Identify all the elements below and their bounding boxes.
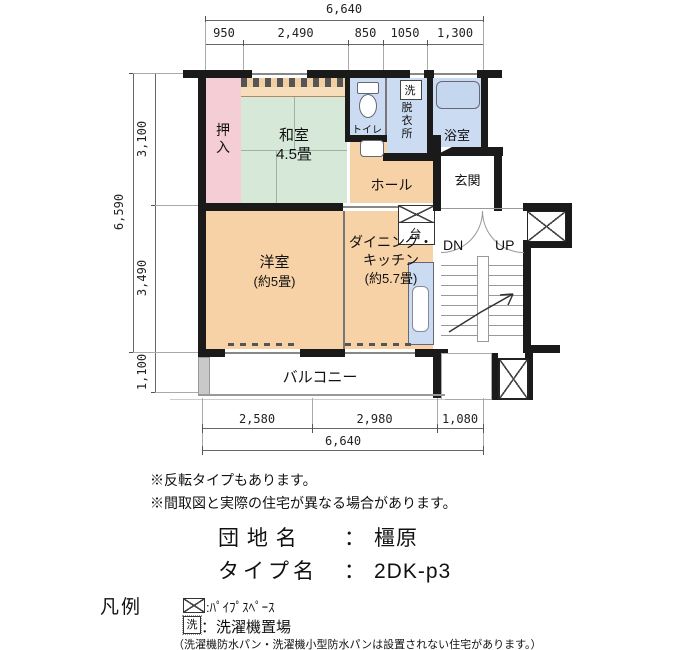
ext-line	[205, 22, 206, 70]
dim-tick	[202, 446, 203, 455]
wall-left	[198, 70, 206, 357]
pipe-space-xbox-bottom	[498, 358, 529, 400]
ext-line	[427, 46, 428, 70]
window-dk-balcony	[345, 349, 415, 357]
washer-legend-mark: 洗	[184, 617, 200, 633]
wall-datsuiijo-bottom	[383, 153, 433, 161]
stairs-up-label: UP	[495, 237, 514, 253]
estate-name-label: 団 地 名	[218, 522, 336, 552]
genkan-label: 玄関	[441, 170, 494, 189]
pipe-space-xbox-top	[527, 211, 566, 242]
stair-landing	[441, 353, 492, 400]
washitsu-size-label: 4.5畳	[241, 143, 347, 164]
washer-pan-label: 洗	[400, 82, 420, 98]
wall-bottom-right-stub	[523, 345, 560, 353]
dim-line	[205, 44, 484, 45]
washer-legend-icon: 洗	[183, 616, 201, 634]
legend-title: 凡例	[100, 592, 142, 619]
dim-left-lower: 3,490	[135, 248, 149, 308]
ext-line	[483, 22, 484, 70]
dim-top-seg: 850	[348, 26, 383, 40]
kitchen-sink-basin	[412, 286, 429, 332]
oshiire-label: 押入	[215, 122, 231, 155]
dim-bottom-seg: 2,980	[312, 412, 437, 426]
estate-name-row: 団 地 名 ： 橿原	[218, 522, 418, 552]
dim-line	[155, 73, 156, 393]
datsuiijo-label: 脱衣所	[400, 102, 414, 141]
wall-stair-right	[523, 248, 531, 353]
washitsu-label: 和室	[241, 124, 347, 145]
dim-tick	[437, 424, 438, 433]
dk-size-label: (約5.7畳)	[347, 268, 435, 287]
hall-dk-opening	[343, 206, 398, 208]
dim-top-seg: 2,490	[243, 26, 348, 40]
window-sill	[345, 343, 415, 346]
dim-bottom-seg: 1,080	[437, 412, 483, 426]
window-yoshitsu-balcony	[225, 349, 300, 357]
dim-bottom-seg: 2,580	[202, 412, 312, 426]
window-top-datsuiijo	[410, 70, 424, 78]
dim-line	[133, 73, 134, 353]
partition-yoshitsu-dk	[343, 211, 345, 349]
legend-pipe-label: :ﾊﾟｲﾌﾟｽﾍﾟｰｽ	[206, 597, 275, 616]
bathroom-label: 浴室	[433, 125, 481, 144]
ext-line	[133, 352, 198, 353]
dim-line	[202, 428, 484, 429]
estate-type-row: タイプ名 ： 2DK-p3	[218, 555, 451, 585]
dim-left-upper: 3,100	[135, 109, 149, 169]
balcony-label: バルコニー	[206, 366, 434, 387]
stair-doorway-line	[441, 208, 523, 209]
toilet-tank	[357, 82, 379, 94]
estate-type-label: タイプ名	[218, 555, 336, 585]
dim-left-total: 6,590	[112, 182, 126, 242]
dim-top-seg: 1,300	[427, 26, 483, 40]
ext-line	[155, 205, 198, 206]
wall-middle	[198, 203, 343, 211]
wall-genkan-right	[494, 148, 502, 211]
estate-name-value: 橿原	[374, 522, 418, 552]
dim-line	[205, 20, 484, 21]
window-top-washitsu	[252, 70, 307, 78]
ext-line	[243, 46, 244, 70]
wall-hall-right	[433, 135, 441, 211]
yoshitsu-label: 洋室	[206, 251, 343, 272]
dk-label-1: ダイニング・	[347, 232, 435, 252]
window-sill	[228, 343, 300, 346]
balcony-railing	[198, 394, 445, 396]
dim-top-total: 6,640	[205, 2, 483, 16]
dim-top-seg: 1050	[383, 26, 427, 40]
dim-tick	[483, 446, 484, 455]
bathtub	[436, 81, 480, 109]
pipe-space-legend-icon	[183, 598, 205, 613]
dim-bottom-total: 6,640	[202, 434, 484, 448]
legend-washer-label: ：洗濯機置場	[201, 616, 291, 637]
toilet-label: トイレ	[348, 121, 386, 136]
yoshitsu-size-label: (約5畳)	[206, 271, 343, 290]
dim-tick	[202, 424, 203, 433]
balcony-outer-line	[170, 399, 445, 400]
ext-line	[383, 46, 384, 70]
hall-label: ホール	[350, 175, 433, 195]
note-2: ※間取図と実際の住宅が異なる場合があります。	[150, 493, 457, 513]
estate-type-value: 2DK-p3	[374, 560, 451, 584]
dim-line	[202, 450, 484, 451]
hall-washbasin	[360, 140, 384, 157]
window-top-bath	[434, 70, 477, 78]
dk-label-2: キッチン	[347, 250, 435, 270]
dim-tick	[483, 424, 484, 433]
dim-tick	[312, 424, 313, 433]
stairs-dn-label: DN	[443, 237, 463, 253]
wall-bath-right	[481, 70, 488, 156]
dim-top-seg: 950	[205, 26, 243, 40]
ext-line	[348, 46, 349, 70]
dim-left-balcony: 1,100	[135, 342, 149, 402]
estate-name-separator: ：	[336, 522, 374, 552]
estate-type-separator: ：	[336, 555, 374, 585]
note-1: ※反転タイプもあります。	[150, 470, 317, 490]
floor-plan-page: 6,640 950 2,490 850 1050 1,300 6,590 3,1…	[0, 0, 700, 650]
toilet-bowl	[359, 94, 377, 118]
stairs-direction-arrow	[441, 266, 523, 350]
legend-note: （洗濯機防水パン・洗濯機小型防水パンは設置されない住宅があります。）	[173, 636, 542, 650]
washitsu-ledge-strip	[241, 87, 347, 97]
washitsu-window-ledge	[241, 78, 347, 87]
